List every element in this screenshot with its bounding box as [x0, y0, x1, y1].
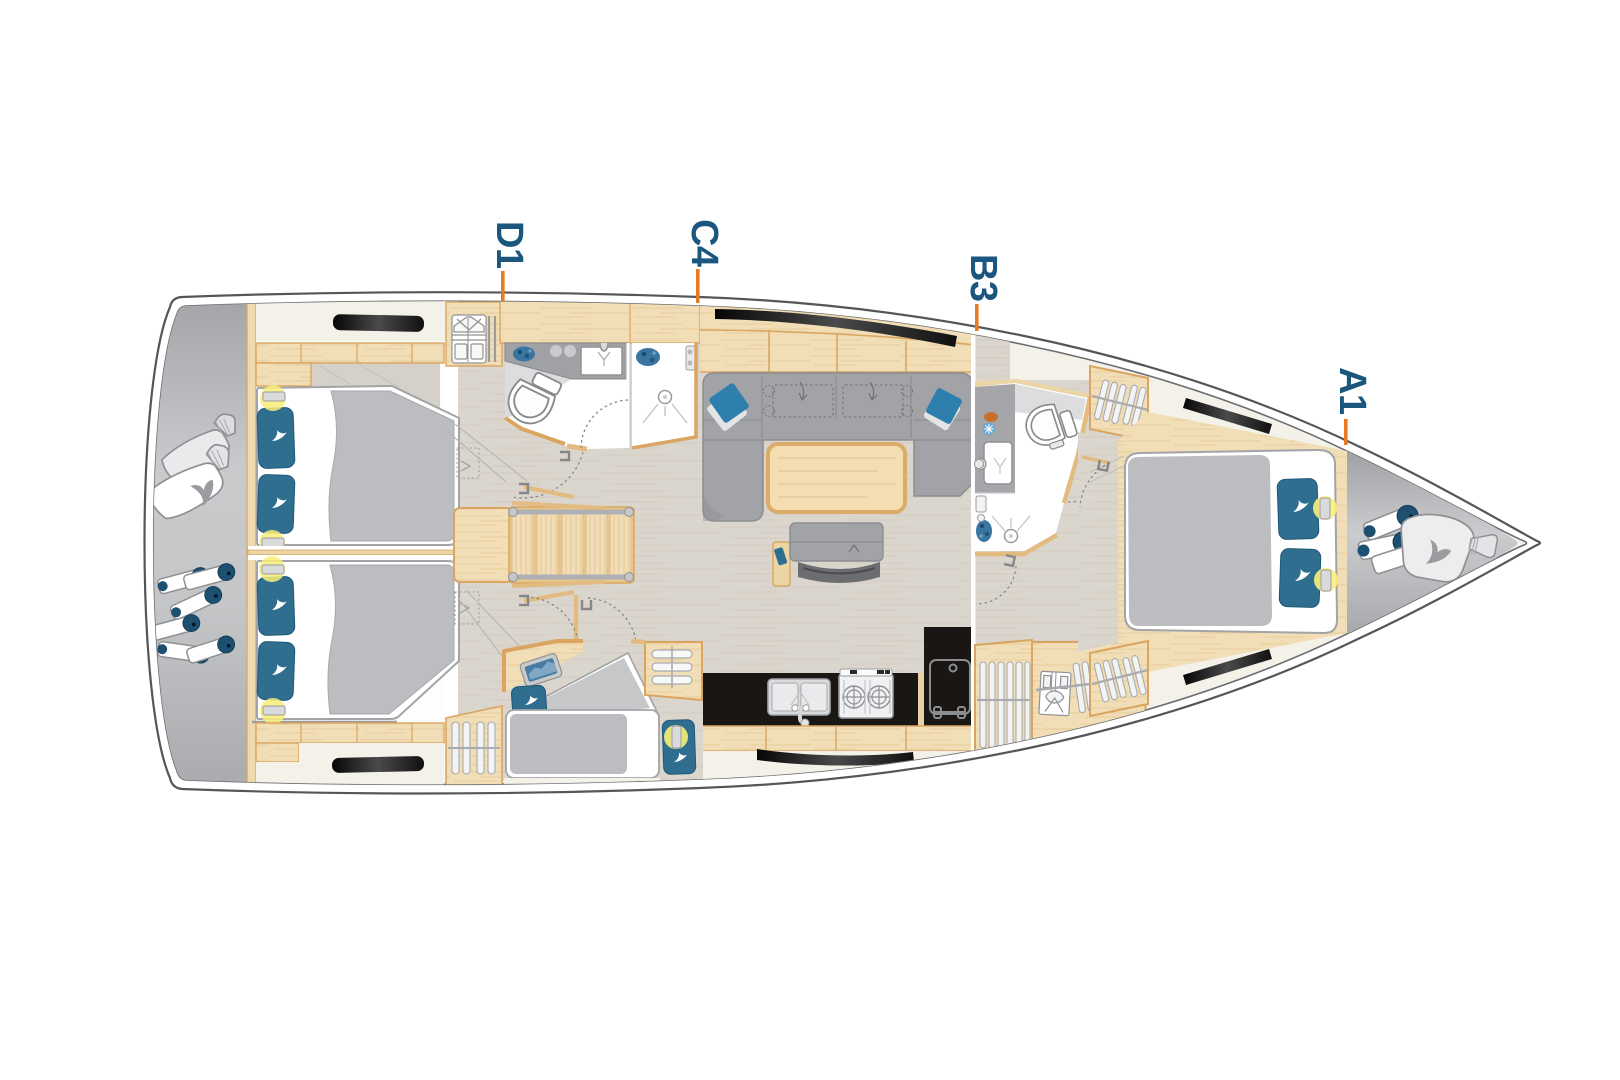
svg-text:A1: A1 — [1331, 367, 1373, 415]
svg-text:D1: D1 — [488, 221, 530, 269]
svg-text:C4: C4 — [683, 219, 725, 267]
svg-text:B3: B3 — [962, 254, 1004, 302]
